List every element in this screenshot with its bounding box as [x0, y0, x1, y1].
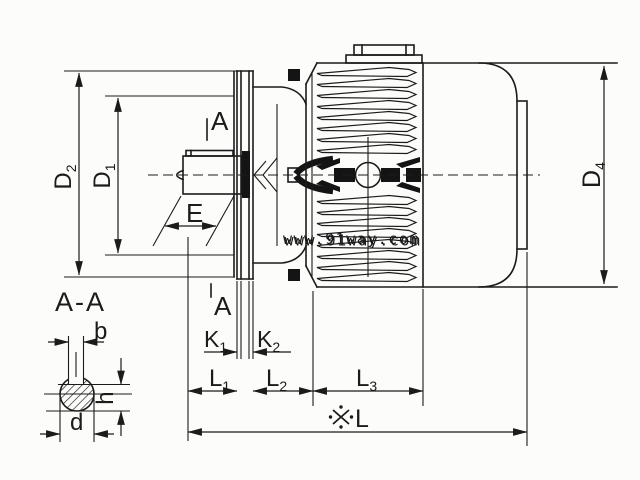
break-line-right: [206, 196, 234, 246]
watermark: www.91way.com www.91way.com: [283, 230, 421, 250]
dim-label-D1: D1: [89, 163, 118, 188]
dim-h: h: [92, 358, 121, 436]
dim-label-L2: L2: [266, 365, 287, 394]
dim-L-total: L: [188, 405, 527, 433]
dim-label-K2: K2: [257, 326, 280, 355]
section-cut-marks: A A: [207, 106, 232, 321]
dim-label-L-total: L: [355, 405, 369, 433]
louver-shadow-upper-right: [396, 157, 420, 168]
dim-K1: K1: [204, 326, 237, 355]
body-bottom-curve: [479, 249, 517, 287]
dim-K2: K2: [253, 326, 291, 355]
dim-label-L3: L3: [356, 365, 377, 394]
break-line-left: [153, 196, 181, 246]
dim-d: d: [40, 409, 114, 436]
output-shaft: E: [153, 151, 250, 247]
dim-L1: L1: [188, 365, 237, 394]
dim-label-h: h: [92, 391, 119, 404]
watermark-text: www.91way.com: [283, 230, 420, 248]
dim-L3: L3: [313, 365, 423, 394]
dim-label-b: b: [94, 318, 107, 345]
dim-label-d: d: [70, 409, 83, 436]
reference-mark-icon: [329, 405, 353, 428]
shaft-key: [186, 151, 233, 157]
flange-bolt-top: [288, 69, 300, 81]
section-mark-bottom: A: [214, 291, 232, 321]
dim-label-D4: D4: [578, 162, 608, 188]
body-top-curve: [479, 63, 517, 101]
dim-E: E: [165, 198, 216, 228]
terminal-box: [346, 45, 422, 63]
dim-D4: D4: [578, 66, 608, 284]
dim-D2: D2: [50, 73, 79, 275]
motor-view: [288, 45, 617, 287]
flange-bolt-bottom: [288, 269, 300, 281]
dim-label-K1: K1: [204, 326, 227, 355]
shaft-cross-section: [44, 336, 132, 442]
section-view-title: A-A: [55, 287, 106, 317]
section-view-AA: A-A b h d: [40, 287, 132, 442]
dim-label-L1: L1: [209, 365, 230, 394]
scanned-drawing-page: D2 D1 E A A: [0, 0, 640, 480]
section-mark-top: A: [211, 106, 229, 136]
dim-label-D2: D2: [50, 164, 79, 189]
louver-shadow-lower-right: [396, 182, 420, 193]
dim-D1: D1: [89, 98, 118, 253]
gearmotor-dimension-drawing: D2 D1 E A A: [0, 0, 640, 480]
dim-label-E: E: [186, 198, 203, 228]
dim-L2: L2: [253, 365, 313, 394]
dim-b: b: [48, 318, 107, 345]
